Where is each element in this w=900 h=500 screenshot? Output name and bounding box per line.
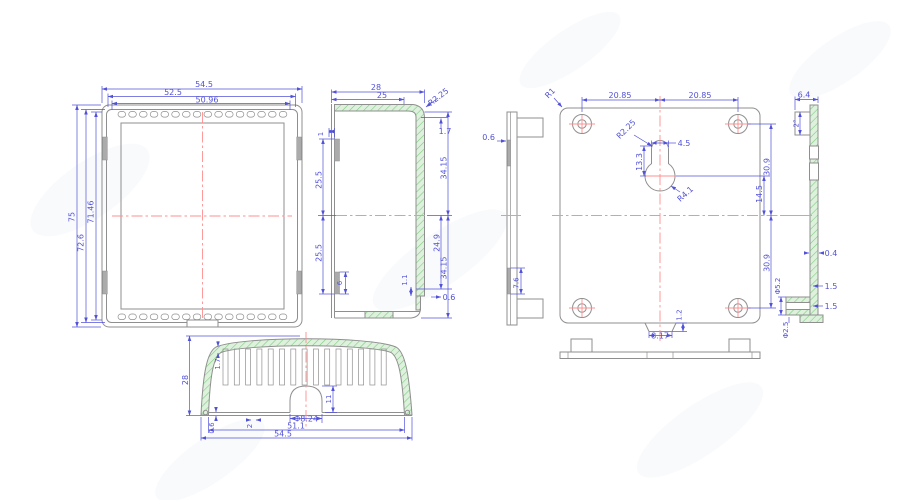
dim-keyhole-neck: 4.5 bbox=[678, 139, 691, 148]
dim-front-width-inner: 50.96 bbox=[196, 96, 219, 105]
dim-side-clip-length: 6 bbox=[336, 280, 344, 285]
dim-back-corner-radius: R1 bbox=[543, 86, 557, 100]
front-bottom-tab bbox=[187, 320, 218, 327]
dim-side-lip: 1.1 bbox=[401, 274, 409, 285]
dim-side-corner-radius: R2.25 bbox=[426, 86, 450, 107]
dim-bottom-dome-height: 11 bbox=[325, 395, 333, 404]
dim-front-height-inner: 71.46 bbox=[87, 201, 96, 224]
dim-front-width-mid: 52.5 bbox=[164, 88, 182, 97]
edge-tab-top bbox=[517, 118, 543, 137]
dim-front-width-outer: 54.5 bbox=[195, 80, 213, 89]
dim-bottom-rib: 2 bbox=[246, 424, 254, 428]
dim-back-hole-right: 20.85 bbox=[689, 91, 712, 100]
dim-edge-clip: 7.6 bbox=[513, 277, 521, 289]
dim-side-height-upper: 34.15 bbox=[440, 157, 449, 180]
dim-back-hole-left: 20.85 bbox=[609, 91, 632, 100]
dim-section-step-b: 1.5 bbox=[825, 302, 838, 311]
dim-keyhole-length: 13.3 bbox=[635, 153, 644, 171]
dim-section-boss-id: Φ2.5 bbox=[782, 322, 790, 339]
edge-tab-bottom bbox=[517, 299, 543, 318]
dim-bottom-fin-wall: 1.7 bbox=[214, 358, 222, 369]
dim-bottom-base: 0.6 bbox=[208, 422, 216, 434]
dim-side-gap: 0.6 bbox=[443, 293, 456, 302]
back-bottom-notch bbox=[645, 323, 676, 332]
dim-side-depth-inner: 25 bbox=[377, 91, 387, 100]
back-view: 20.85 20.85 R1 R2.25 4.5 13.3 R4.1 30.9 … bbox=[543, 86, 781, 358]
edge-clip-bottom bbox=[508, 268, 511, 294]
dim-bottom-width-outer: 54.5 bbox=[274, 430, 292, 439]
dim-front-height-mid: 72.6 bbox=[77, 234, 86, 252]
section-vent-gap-1 bbox=[810, 146, 819, 159]
dim-side-height-inner: 24.9 bbox=[433, 234, 442, 252]
side-clip-top bbox=[335, 139, 340, 161]
dim-section-boss-od: Φ5.2 bbox=[774, 278, 782, 295]
dim-section-step-a: 1.5 bbox=[825, 282, 838, 291]
dim-side-clip-offset: 1 bbox=[317, 132, 325, 136]
watermark bbox=[17, 0, 900, 500]
edge-clip-top bbox=[508, 140, 511, 166]
side-lower-step bbox=[416, 296, 421, 310]
front-centerlines bbox=[112, 112, 292, 320]
bottom-section-view: 28 1.7 11 Φ8.24 2 0.6 51.1 54.5 bbox=[181, 332, 412, 441]
dim-back-bottom-span: 30.9 bbox=[763, 254, 772, 272]
dim-side-half-upper: 25.5 bbox=[315, 171, 324, 189]
section-plate bbox=[810, 105, 818, 322]
heatsink-fins bbox=[223, 349, 386, 385]
dim-front-height-outer: 75 bbox=[68, 212, 77, 222]
dim-bottom-height: 28 bbox=[181, 375, 190, 385]
dim-side-wall-top: 1.7 bbox=[439, 127, 452, 136]
dim-back-top-span: 30.9 bbox=[763, 158, 772, 176]
section-boss bbox=[786, 297, 810, 315]
section-bottom-flange bbox=[800, 315, 823, 323]
dim-side-half-lower: 25.5 bbox=[315, 244, 324, 262]
dim-back-key-center: 14.5 bbox=[755, 185, 764, 203]
section-vent-gap-2 bbox=[810, 163, 819, 180]
dim-edge-wall: 0.6 bbox=[482, 133, 495, 142]
dim-section-tab-width: 6.4 bbox=[798, 91, 811, 100]
dim-notch-depth: 1.2 bbox=[676, 309, 684, 320]
right-section-view: 6.4 2° 0.4 1.5 1.5 Φ5.2 Φ2.5 bbox=[774, 91, 837, 339]
cad-canvas: 54.5 52.5 50.96 75 72.6 71.46 bbox=[0, 0, 900, 500]
dim-section-tab-height: 2° bbox=[793, 120, 801, 128]
dim-keyhole-radius: R2.25 bbox=[615, 118, 638, 141]
dim-side-height-lower: 34.15 bbox=[440, 257, 449, 280]
dim-keyhole-bottom-radius: R4.1 bbox=[676, 185, 696, 204]
dim-notch-width: 8.17 bbox=[651, 332, 669, 341]
side-bottom-tab bbox=[365, 312, 393, 319]
back-bottom-strip bbox=[560, 339, 760, 359]
dim-section-wall: 0.4 bbox=[825, 249, 838, 258]
